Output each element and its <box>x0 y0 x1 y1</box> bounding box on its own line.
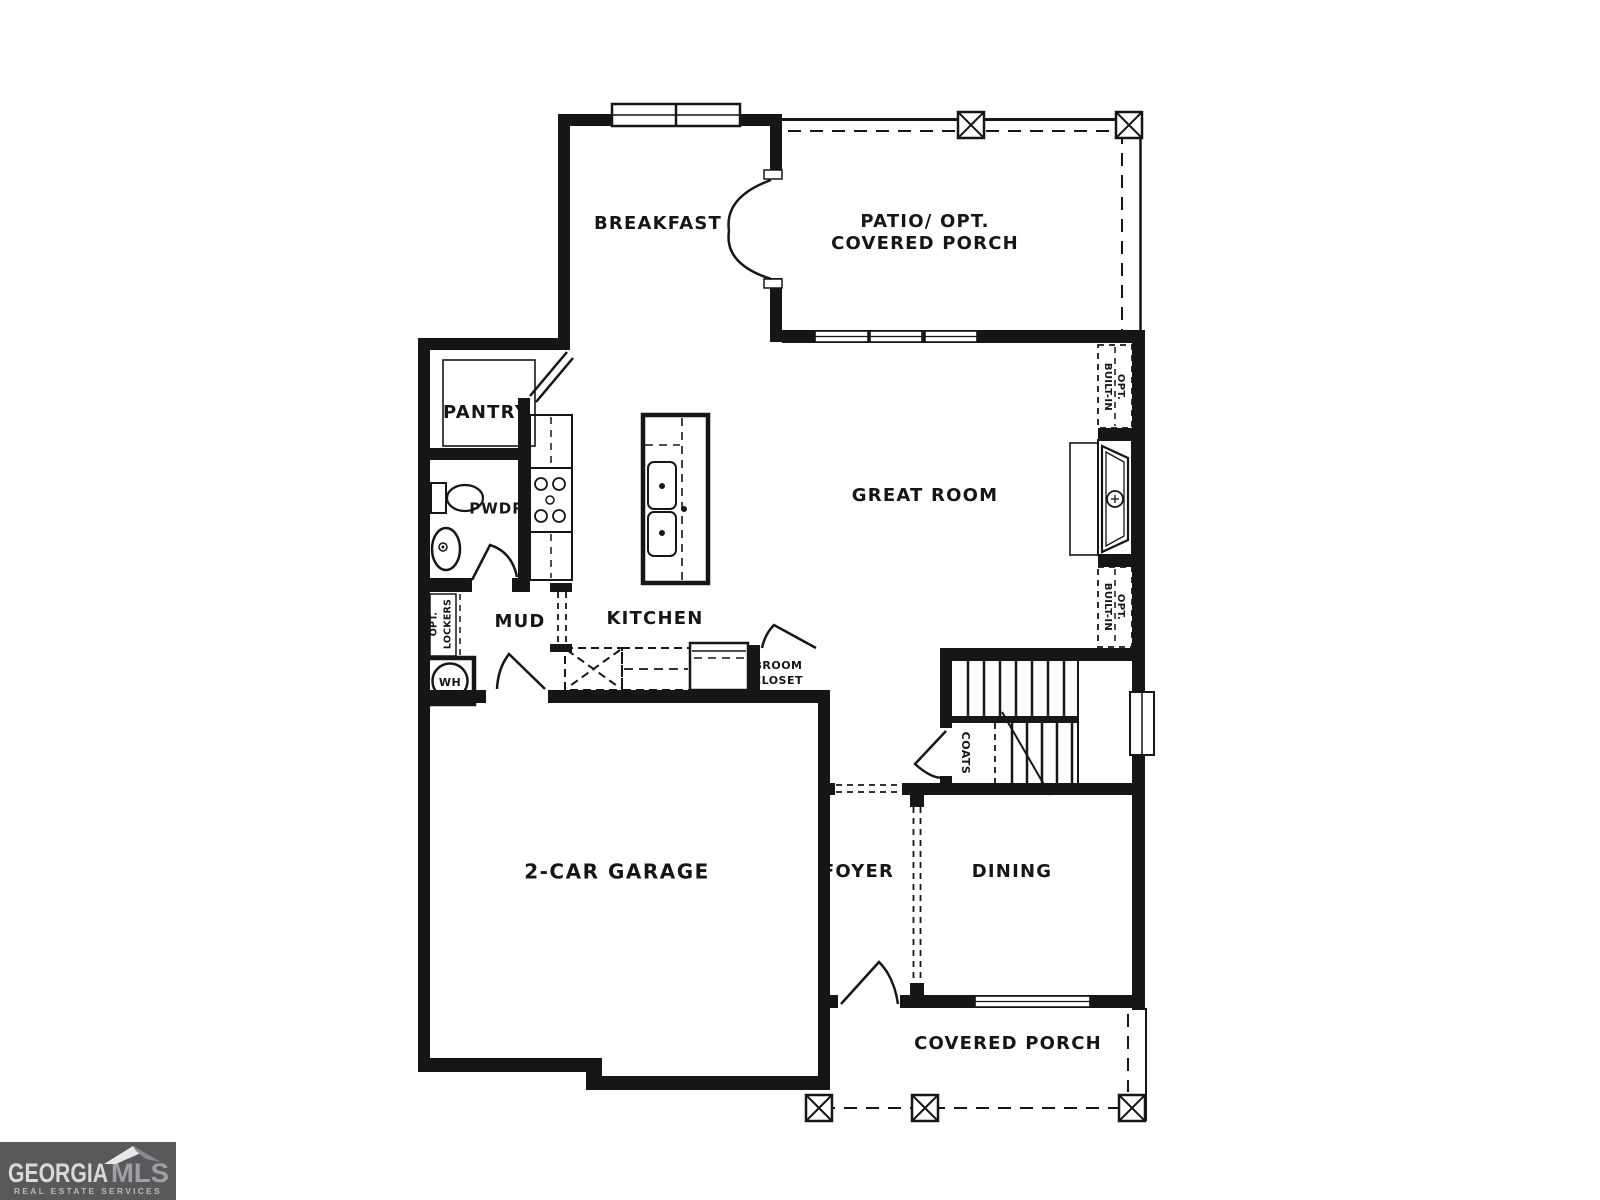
kitchen-island <box>643 415 708 583</box>
wall-kitchen-west <box>518 398 530 592</box>
wall-garage-right <box>818 690 830 1090</box>
floor-plan-page: BREAKFAST PATIO/ OPT. COVERED PORCH GREA… <box>0 0 1600 1200</box>
wall-mud-kitchen-jamb-top <box>550 583 572 592</box>
room-label-pantry: PANTRY <box>443 402 529 423</box>
greatroom-triple-window <box>815 331 977 342</box>
wall-breakfast-right-upper <box>770 114 782 178</box>
wall-garage-bottom-a <box>418 1058 588 1072</box>
dining-window <box>975 996 1090 1007</box>
georgia-mls-logo: GEORGIA MLS REAL ESTATE SERVICES <box>0 1142 176 1200</box>
wall-garage-step <box>586 1058 602 1090</box>
room-label-patio-line1: PATIO/ OPT. <box>860 211 989 232</box>
wall-foyer-dining-stub-top <box>910 795 924 807</box>
label-built-in-lower-line2: BUILT-IN <box>1102 583 1113 631</box>
label-built-in-upper-line2: BUILT-IN <box>1102 363 1113 411</box>
wall-powder-mud <box>418 578 472 592</box>
stair-landing-window <box>1130 692 1154 755</box>
breakfast-window <box>612 104 740 126</box>
label-opt-lockers-line2: LOCKERS <box>443 599 454 649</box>
opening-hall-foyer <box>835 781 902 797</box>
wall-garage-bottom-b <box>600 1076 830 1090</box>
mud-kitchen-opening <box>558 592 566 646</box>
wall-builtin-stub-top <box>1098 428 1132 440</box>
wall-stair-divider <box>952 716 1078 723</box>
broom-closet-door <box>762 625 816 648</box>
label-built-in-upper-line1: OPT. <box>1115 374 1126 400</box>
porch-post-icon <box>806 1095 832 1121</box>
label-broom-closet-line1: BROOM <box>753 659 802 672</box>
room-label-breakfast: BREAKFAST <box>594 213 722 234</box>
logo-brand-text: GEORGIA <box>8 1158 108 1188</box>
base-cabinet-x <box>565 648 622 690</box>
counter-cabinet <box>622 648 690 690</box>
wall-stair-top <box>940 648 1145 661</box>
walls <box>418 114 1145 1090</box>
room-label-powder: PWDR <box>469 500 525 518</box>
wall-pantry-bottom <box>418 448 518 460</box>
wall-exterior-right <box>1132 330 1145 1010</box>
coats-closet-door <box>915 731 946 778</box>
wall-stair-left <box>940 648 952 728</box>
patio-post-icon <box>1116 112 1142 138</box>
opening-mud-garage-door <box>486 688 548 705</box>
porch-post-icon <box>1119 1095 1145 1121</box>
french-doors <box>729 170 782 288</box>
label-coats: COATS <box>959 732 972 775</box>
powder-door <box>472 545 517 580</box>
room-label-mud: MUD <box>494 611 545 632</box>
label-water-heater: WH <box>439 676 461 689</box>
mud-garage-door <box>497 654 545 689</box>
refrigerator-icon <box>690 643 748 690</box>
room-label-patio-line2: COVERED PORCH <box>831 233 1019 254</box>
wall-garage-top <box>418 690 830 703</box>
wall-foyer-dining-stub-bottom <box>910 983 924 997</box>
wall-pantry-top <box>418 338 570 350</box>
staircase <box>968 661 1078 795</box>
label-built-in-lower-line1: OPT. <box>1115 594 1126 620</box>
label-broom-closet-line2: CLOSET <box>753 674 803 687</box>
room-label-dining: DINING <box>972 861 1052 882</box>
pantry-shelves <box>443 352 573 446</box>
logo-brand-suffix-text: MLS <box>111 1158 169 1188</box>
wall-builtin-stub-bottom <box>1098 555 1132 567</box>
room-label-garage: 2-CAR GARAGE <box>524 860 710 884</box>
label-opt-lockers-line1: OPT. <box>429 612 440 637</box>
wall-powder-door-jamb <box>512 578 530 592</box>
kitchen-counter-south <box>565 643 748 690</box>
foyer-dining-opening <box>914 807 921 983</box>
patio-post-icon <box>958 112 984 138</box>
sink-icon <box>432 528 460 570</box>
fireplace-icon <box>1070 440 1132 555</box>
kitchen-counter-west <box>530 415 572 580</box>
floor-plan-svg: BREAKFAST PATIO/ OPT. COVERED PORCH GREA… <box>0 0 1600 1200</box>
room-label-kitchen: KITCHEN <box>607 608 704 629</box>
wall-breakfast-left <box>558 114 570 350</box>
room-label-covered-porch: COVERED PORCH <box>914 1033 1102 1054</box>
island-sink-icon <box>648 462 687 556</box>
floor-plan: BREAKFAST PATIO/ OPT. COVERED PORCH GREA… <box>418 104 1154 1121</box>
room-label-great-room: GREAT ROOM <box>852 485 998 506</box>
range-icon <box>530 468 572 532</box>
room-label-foyer: FOYER <box>822 861 894 882</box>
porch-outline <box>806 1008 1146 1121</box>
logo-tagline-text: REAL ESTATE SERVICES <box>14 1187 162 1196</box>
porch-post-icon <box>912 1095 938 1121</box>
